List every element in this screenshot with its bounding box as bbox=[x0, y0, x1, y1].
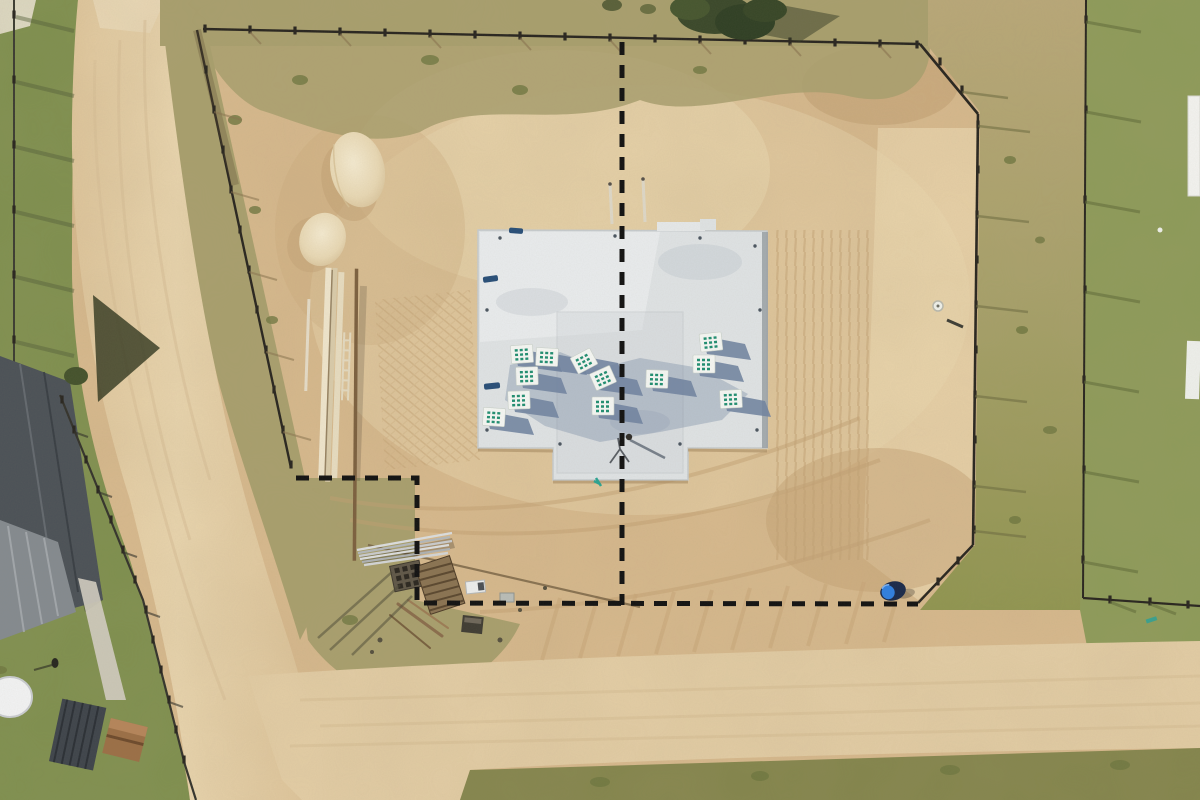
aerial-photo: Top-down aerial photo of a residential c… bbox=[0, 0, 1200, 800]
photo-grain bbox=[0, 0, 1200, 800]
aerial-photo-canvas bbox=[0, 0, 1200, 800]
